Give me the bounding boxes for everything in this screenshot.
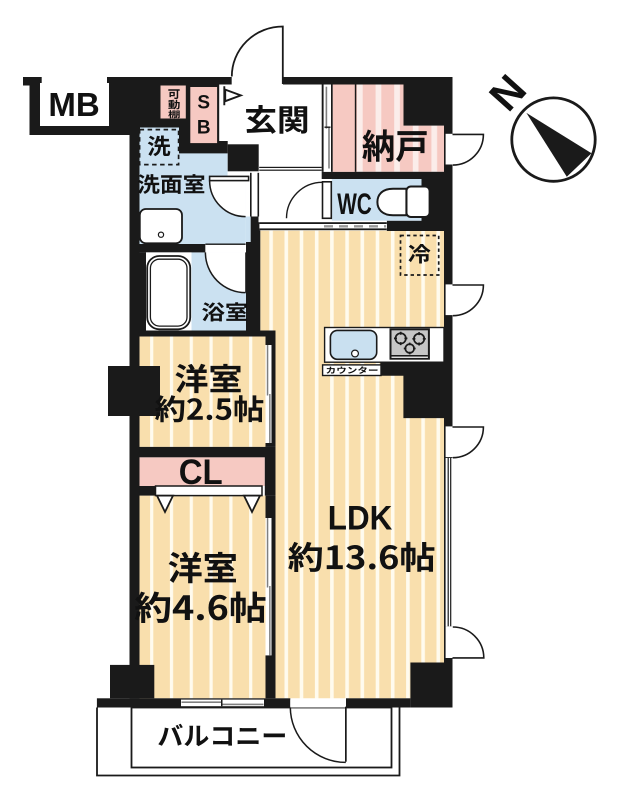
svg-text:WC: WC <box>337 188 372 221</box>
svg-text:LDK: LDK <box>328 500 393 538</box>
svg-text:S: S <box>197 93 210 114</box>
svg-text:MB: MB <box>48 86 99 123</box>
svg-text:B: B <box>197 118 211 139</box>
